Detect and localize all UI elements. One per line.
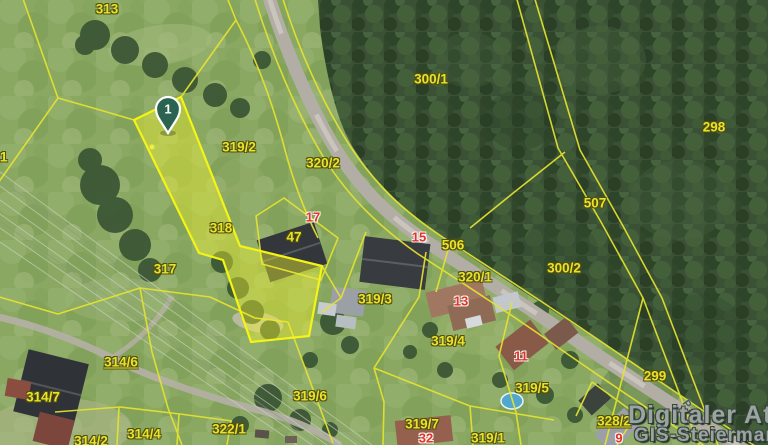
parcel-label: 314/2 (74, 434, 108, 445)
parcel-label: 298 (703, 120, 726, 135)
marker-pin[interactable]: 1 (138, 82, 198, 152)
parcel-label: 319/4 (431, 334, 465, 349)
parcel-label: 506 (442, 238, 465, 253)
parcel-label: 299 (644, 369, 667, 384)
parcel-label: 313 (96, 2, 119, 17)
map-viewport[interactable]: 313 319/2 320/2 300/1 298 507 300/2 506 … (0, 0, 768, 445)
house-number: 15 (412, 230, 426, 245)
parcel-label: 1 (0, 150, 8, 165)
watermark-line2: GIS-Steiermark (634, 425, 768, 445)
parcel-label: 319/7 (405, 417, 439, 432)
parcel-label-link[interactable]: 314/6 (104, 355, 138, 370)
parcel-label: 320/2 (306, 156, 340, 171)
parcel-label: 318 (210, 221, 233, 236)
house-number: 32 (419, 431, 433, 445)
parcel-label-link[interactable]: 328/2 (597, 414, 631, 429)
house-number: 13 (454, 294, 468, 309)
parcel-label: 507 (584, 196, 607, 211)
parcel-label: 319/2 (222, 140, 256, 155)
parcel-label: 319/3 (358, 292, 392, 307)
parcel-label: 319/6 (293, 389, 327, 404)
parcel-label: 314/7 (26, 390, 60, 405)
marker-pin-label: 1 (164, 102, 171, 117)
house-number: 17 (306, 210, 320, 225)
parcel-label: 47 (286, 230, 301, 245)
house-number: 9 (615, 431, 622, 445)
parcel-label: 300/1 (414, 72, 448, 87)
label-layer: 313 319/2 320/2 300/1 298 507 300/2 506 … (0, 0, 768, 445)
parcel-label: 322/1 (212, 422, 246, 437)
house-number: 11 (514, 349, 528, 364)
parcel-label: 314/4 (127, 427, 161, 442)
parcel-label: 319/5 (515, 381, 549, 396)
parcel-label: 319/1 (471, 431, 505, 445)
parcel-label: 320/1 (458, 270, 492, 285)
parcel-label: 300/2 (547, 261, 581, 276)
parcel-label: 317 (154, 262, 177, 277)
